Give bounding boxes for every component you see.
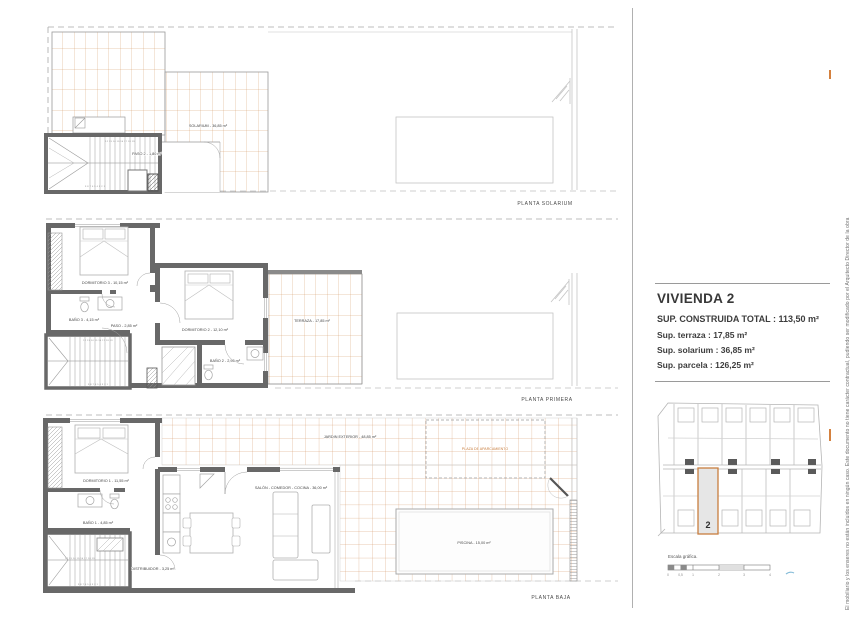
- room-label-piscina: PISCINA - 15,00 m²: [457, 541, 491, 545]
- stair-numbers: 12 13 14 15 16 17 18 19: [105, 141, 135, 143]
- bathroom3-fixtures: [80, 297, 122, 312]
- scale-tick: 1: [692, 573, 694, 577]
- room-label-jardin: JARDIN EXTERIOR - 48,85 m²: [324, 435, 377, 439]
- plan-title-baja: PLANTA BAJA: [531, 595, 570, 601]
- room-label-solarium: SOLARIUM - 36,85 m²: [189, 124, 228, 128]
- tv-cabinet: [312, 505, 330, 553]
- built-area-line: SUP. CONSTRUIDA TOTAL : 113,50 m²: [657, 314, 819, 324]
- room-label-bano3: BAÑO 3 - 4,15 m²: [69, 317, 100, 322]
- terrace-area-line: Sup. terraza : 17,85 m²: [657, 330, 747, 340]
- bed-icon: [185, 271, 233, 319]
- wardrobe-icon: [48, 427, 62, 488]
- stair-numbers: 9 8 7 6 5 4 3 2 1: [85, 186, 106, 188]
- dwelling-title: VIVIENDA 2: [657, 291, 735, 306]
- room-label-salon: SALÓN - COMEDOR - COCINA - 36,00 m²: [255, 485, 328, 490]
- room-label-dormitorio3: DORMITORIO 3 - 10,15 m²: [82, 281, 129, 285]
- room-label-bano2: BAÑO 2 - 2,95 m²: [210, 358, 241, 363]
- dining-table: [183, 513, 240, 553]
- stair-numbers: 12 13 14 15 16 17 18 19: [83, 340, 113, 342]
- panel-divider: [632, 8, 633, 608]
- disclaimer-text: El mobiliario y los enseres no están inc…: [845, 218, 850, 611]
- room-label-distribuidor: DISTRIBUIDOR - 3,25 m²: [131, 567, 175, 571]
- scale-label: Escala gráfica.: [668, 554, 698, 559]
- stray-blue-mark: [786, 572, 794, 574]
- stair-numbers: 9 8 7 6 5 4 3 2 1: [78, 584, 99, 586]
- registration-mark: [829, 429, 831, 441]
- plan-title-solarium: PLANTA SOLARIUM: [517, 201, 572, 207]
- corner-basin-icon: [200, 474, 214, 488]
- registration-mark: [829, 70, 831, 79]
- room-label-bano1: BAÑO 1 - 4,85 m²: [83, 520, 114, 525]
- disclaimer-wrapper: El mobiliario y los enseres no están inc…: [845, 610, 850, 616]
- info-rule-top: [655, 283, 830, 284]
- scale-tick: 0,5: [678, 573, 683, 577]
- stair-numbers: 12 13 14 15 16 17 18 19: [65, 558, 95, 560]
- neighbor-context: [397, 273, 577, 386]
- scale-tick: 2: [718, 573, 720, 577]
- solarium-area-line: Sup. solarium : 36,85 m²: [657, 345, 755, 355]
- scale-tick: 0: [667, 573, 669, 577]
- neighbor-context: [396, 29, 577, 190]
- room-label-parking: PLAZA DE APARCAMIENTO: [462, 447, 509, 451]
- kitchen-counter: [163, 475, 180, 553]
- unit-number: 2: [705, 520, 710, 530]
- plan-title-primera: PLANTA PRIMERA: [521, 397, 572, 403]
- site-location-map: 2 Escala gráfica. 0 0,5 1 2 3 4: [658, 398, 830, 583]
- terraza-floor: [268, 274, 362, 384]
- scale-tick: 4: [769, 573, 771, 577]
- plan-sheet: 12 13 14 15 16 17 18 19 9 8 7 6 5 4 3 2 …: [0, 0, 850, 620]
- stair-numbers: 9 8 7 6 5 4 3 2 1: [88, 384, 109, 386]
- bathroom2-fixtures: [204, 347, 263, 380]
- staircase: 12 13 14 15 16 17 18 19 9 8 7 6 5 4 3 2 …: [46, 335, 130, 388]
- info-rule-bottom: [655, 381, 830, 382]
- scale-tick: 3: [743, 573, 745, 577]
- laundry-closet: [162, 347, 195, 385]
- stair-skylight: [73, 117, 125, 133]
- plot-area-line: Sup. parcela : 126,25 m²: [657, 360, 754, 370]
- room-label-dormitorio1: DORMITORIO 1 - 11,55 m²: [83, 479, 130, 483]
- planta-baja-drawing: 12 13 14 15 16 17 18 19 9 8 7 6 5 4 3 2 …: [40, 412, 625, 609]
- sofa: [273, 492, 330, 580]
- staircase: 12 13 14 15 16 17 18 19 9 8 7 6 5 4 3 2 …: [46, 533, 130, 588]
- staircase: 12 13 14 15 16 17 18 19 9 8 7 6 5 4 3 2 …: [46, 135, 160, 192]
- site-units: [663, 404, 821, 533]
- highlighted-unit: 2: [698, 468, 718, 534]
- site-boundary: [658, 403, 822, 536]
- duct-shaft: [148, 174, 158, 191]
- room-label-paso2: PASO 2 - 1,80 m²: [132, 152, 162, 156]
- room-label-paso: PASO - 2,85 m²: [111, 324, 138, 328]
- planta-solarium-drawing: 12 13 14 15 16 17 18 19 9 8 7 6 5 4 3 2 …: [40, 8, 625, 208]
- understair-closet: [128, 170, 147, 191]
- bathroom1-fixtures: [78, 494, 119, 509]
- room-label-terraza: TERRAZA - 17,85 m²: [294, 319, 331, 323]
- duct-shaft: [147, 368, 157, 388]
- planta-primera-drawing: 12 13 14 15 16 17 18 19 9 8 7 6 5 4 3 2 …: [40, 213, 625, 410]
- bed-icon: [75, 425, 128, 473]
- bed-icon: [80, 227, 128, 275]
- wardrobe-icon: [48, 233, 62, 290]
- room-label-dormitorio2: DORMITORIO 2 - 12,10 m²: [182, 328, 229, 332]
- scale-bar: 0 0,5 1 2 3 4: [667, 565, 771, 577]
- understair-closet: [97, 538, 123, 551]
